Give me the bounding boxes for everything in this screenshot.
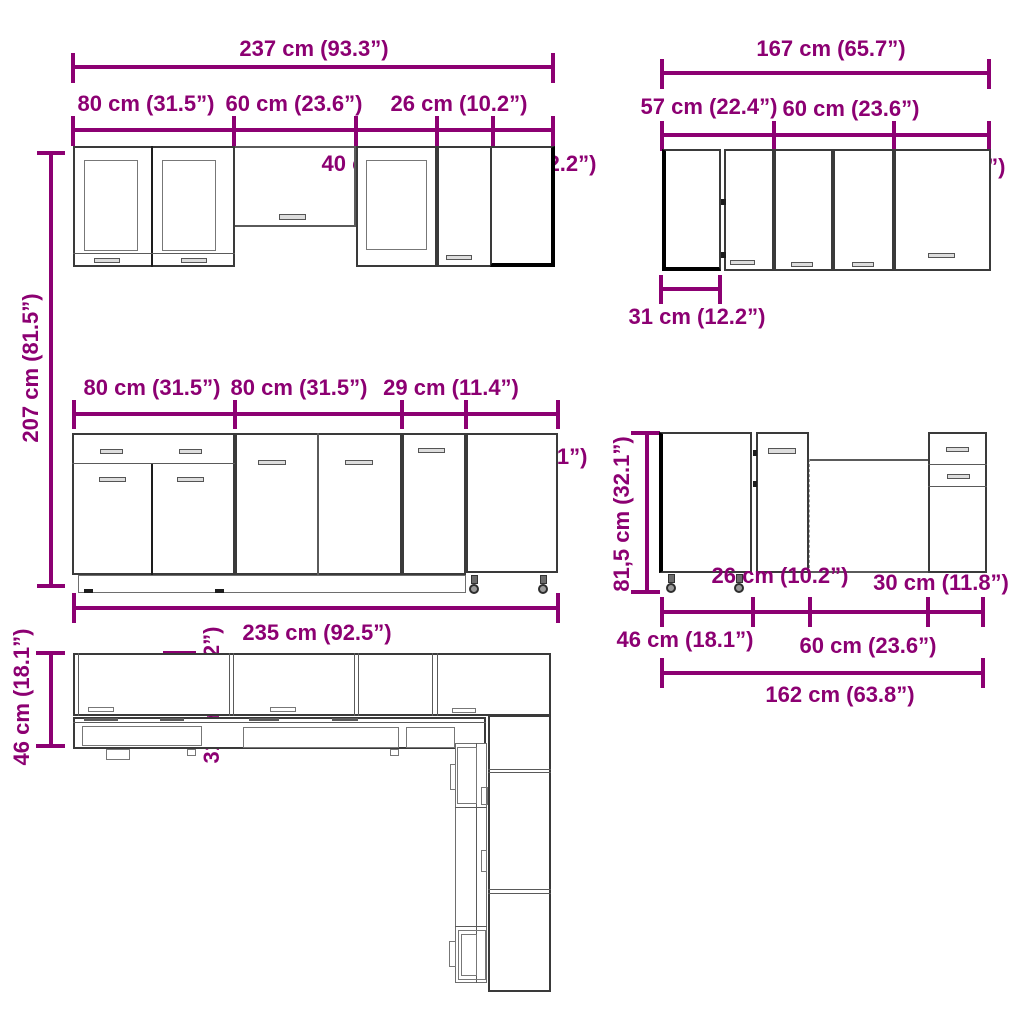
dim-tick: [660, 121, 664, 151]
dim-label-26-wall: 26 cm (10.2”): [391, 93, 528, 115]
dim-tick: [981, 658, 985, 688]
dim-tick: [718, 275, 722, 304]
dim-label-46-right: 46 cm (18.1”): [617, 629, 754, 651]
dim-tick: [556, 593, 560, 623]
dim-label-80-base1: 80 cm (31.5”): [84, 377, 221, 399]
door-handle: [730, 260, 755, 265]
door-panel: [162, 160, 216, 251]
drawer-handle: [100, 449, 123, 454]
plan-drawer: [243, 727, 399, 748]
plan-foot: [106, 749, 130, 760]
drawer-handle: [179, 449, 202, 454]
hinge-mark: [721, 252, 726, 258]
plan-wall-row: [73, 653, 551, 716]
dim-tick: [464, 400, 468, 429]
dim-line-base-segments: [74, 412, 558, 416]
caster-stem: [471, 575, 478, 584]
caster-wheel: [538, 584, 548, 594]
plan-divider: [229, 653, 230, 716]
door-handle: [852, 262, 874, 267]
dim-tick: [987, 121, 991, 151]
dim-line-46-plan: [49, 653, 53, 748]
dim-tick: [72, 400, 76, 429]
plan-drawer: [461, 934, 477, 976]
plan-line: [455, 926, 487, 927]
dim-line-207: [49, 153, 53, 588]
plan-line: [455, 807, 487, 808]
dim-line-237: [73, 65, 555, 69]
plan-divider: [358, 653, 359, 716]
dim-line-167: [662, 71, 991, 75]
plan-handle-mark: [481, 850, 487, 872]
door-handle: [791, 262, 813, 267]
dim-tick: [72, 593, 76, 623]
base-cabinet-80-drawer: [72, 433, 235, 575]
dim-label-80-base2: 80 cm (31.5”): [231, 377, 368, 399]
plan-handle-mark: [332, 718, 358, 721]
dim-tick: [660, 59, 664, 89]
caster-wheel: [666, 583, 676, 593]
dim-bar: [631, 431, 660, 435]
door-handle: [345, 460, 373, 465]
plan-divider: [488, 769, 551, 770]
dim-tick: [491, 116, 495, 146]
door-panel: [84, 160, 138, 251]
caster-stem: [540, 575, 547, 584]
door-divider: [151, 146, 153, 267]
dim-tick: [551, 53, 555, 83]
dim-tick: [808, 597, 812, 627]
door-divider: [151, 464, 153, 575]
plan-drawer: [82, 726, 202, 746]
dim-label-60-wall: 60 cm (23.6”): [226, 93, 363, 115]
dim-tick: [551, 116, 555, 146]
hinge-mark: [753, 481, 757, 487]
door-handle: [99, 477, 126, 482]
plan-divider: [488, 772, 551, 773]
dim-tick: [233, 400, 237, 429]
dim-label-237: 237 cm (93.3”): [239, 38, 388, 60]
hood-handle: [279, 214, 306, 220]
base-corner-cabinet-46: [466, 433, 558, 573]
dim-tick: [232, 116, 236, 146]
dim-tick: [71, 116, 75, 146]
dashed-divider: [809, 459, 810, 573]
dim-bar: [36, 651, 65, 655]
dim-bar: [631, 590, 660, 594]
dimension-diagram: 237 cm (93.3”) 80 cm (31.5”) 60 cm (23.6…: [0, 0, 1024, 1024]
dim-label-26-base: 26 cm (10.2”): [712, 565, 849, 587]
door-handle: [928, 253, 955, 258]
dim-tick: [660, 597, 664, 627]
plan-handle-mark: [450, 764, 456, 790]
drawer-handle: [946, 447, 969, 452]
dim-tick: [926, 597, 930, 627]
plan-line: [73, 722, 486, 723]
dim-tick: [435, 116, 439, 146]
dim-label-29: 29 cm (11.4”): [383, 377, 519, 399]
dim-tick: [400, 400, 404, 429]
drawer-line: [928, 486, 987, 487]
plan-handle-mark: [88, 707, 114, 712]
dim-label-30-base: 30 cm (11.8”): [873, 572, 1009, 594]
plinth-foot: [84, 589, 93, 593]
dim-label-167: 167 cm (65.7”): [756, 38, 905, 60]
dim-tick: [556, 400, 560, 429]
door-panel: [366, 160, 427, 250]
plan-foot: [390, 749, 399, 756]
dim-label-235: 235 cm (92.5”): [242, 622, 391, 644]
base-cabinet-29: [402, 433, 466, 575]
door-handle: [94, 258, 120, 263]
caster-wheel: [469, 584, 479, 594]
caster-stem: [668, 574, 675, 583]
door-handle: [258, 460, 286, 465]
dim-bar: [37, 151, 65, 155]
dim-tick: [354, 116, 358, 146]
dim-tick: [981, 597, 985, 627]
plan-handle-mark: [481, 787, 488, 805]
wall-cabinet: [774, 149, 833, 271]
plan-divider: [432, 653, 433, 716]
door-handle: [177, 477, 204, 482]
drawer-handle: [768, 448, 796, 454]
plan-drawer: [457, 747, 477, 804]
plan-drawer: [406, 727, 455, 748]
dim-tick: [71, 53, 75, 83]
dim-tick: [659, 275, 663, 304]
dim-label-57: 57 cm (22.4”): [641, 96, 778, 118]
plan-divider: [488, 893, 551, 894]
dim-label-162: 162 cm (63.8”): [765, 684, 914, 706]
drawer-handle: [947, 474, 970, 479]
dim-tick: [892, 121, 896, 151]
wall-corner-cabinet-31: [490, 146, 555, 267]
door-handle: [446, 255, 472, 260]
bottom-rail-line: [73, 253, 235, 254]
dim-label-81: 81,5 cm (32.1”): [611, 436, 633, 591]
plan-handle-mark: [160, 718, 184, 721]
dim-tick: [987, 59, 991, 89]
hinge-mark: [721, 199, 726, 205]
dim-bar: [36, 744, 65, 748]
drawer-line: [72, 463, 235, 464]
dim-line-235: [74, 606, 558, 610]
dim-line-162: [662, 671, 985, 675]
hood-cabinet-bottom: [235, 225, 356, 227]
plan-handle-mark: [452, 708, 476, 713]
dim-line-81: [645, 433, 649, 594]
base-cabinet-30-drawers: [928, 432, 987, 573]
plan-divider: [233, 653, 234, 716]
plinth-foot: [215, 589, 224, 593]
plan-foot: [187, 749, 196, 756]
dim-line-base-right-segments: [662, 610, 985, 614]
hinge-mark: [753, 450, 757, 456]
drawer-line: [928, 464, 987, 465]
base-corner-cabinet: [659, 432, 752, 573]
plan-divider: [354, 653, 355, 716]
plan-arm-column: [488, 715, 551, 992]
door-divider: [317, 433, 319, 575]
counter-top-line: [809, 459, 928, 461]
wall-cabinet-26: [437, 146, 493, 267]
dim-line-segments-left: [73, 128, 555, 132]
plan-handle-mark: [249, 718, 279, 721]
plan-divider: [488, 889, 551, 890]
dim-bar: [37, 584, 65, 588]
door-handle: [181, 258, 207, 263]
plan-line: [78, 653, 79, 716]
plan-divider: [437, 653, 438, 716]
plan-handle-mark: [270, 707, 296, 712]
dim-line-segments-right: [662, 133, 991, 137]
hood-cabinet-top: [235, 146, 356, 148]
dim-line-31-depth: [661, 287, 722, 291]
plan-handle-mark: [84, 718, 118, 721]
wall-corner-cabinet-57: [662, 149, 721, 271]
dim-tick: [751, 597, 755, 627]
plinth: [78, 575, 466, 593]
wall-cabinet: [724, 149, 774, 271]
dim-tick: [660, 658, 664, 688]
dim-tick: [772, 121, 776, 151]
plan-handle-mark: [449, 941, 456, 967]
dim-label-46-plan: 46 cm (18.1”): [11, 629, 33, 766]
wall-cabinet: [833, 149, 894, 271]
dim-label-60-base: 60 cm (23.6”): [800, 635, 937, 657]
dim-label-80-wall: 80 cm (31.5”): [78, 93, 215, 115]
dim-label-60-right: 60 cm (23.6”): [783, 98, 920, 120]
dim-label-207: 207 cm (81.5”): [20, 293, 42, 442]
dim-label-31-depth: 31 cm (12.2”): [629, 306, 766, 328]
door-handle: [418, 448, 445, 453]
